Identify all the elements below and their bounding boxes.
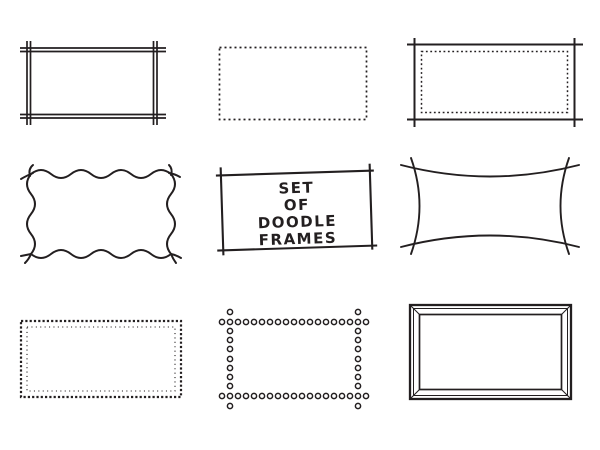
double-line-crossed-frame-lines (20, 41, 166, 125)
wavy-frame-drawing (20, 164, 182, 264)
double-dotted-outer-border (21, 321, 181, 397)
dashed-frame (216, 44, 370, 124)
picture-frame-middle-border (414, 309, 568, 396)
title-line-2: OF (284, 196, 311, 215)
picture-frame-outer-border (410, 305, 571, 399)
wavy-frame (20, 164, 182, 264)
concave-frame (398, 156, 588, 256)
picture-frame-miter-lines (410, 305, 571, 399)
double-line-crossed-frame (20, 41, 166, 125)
wavy-frame-lines (21, 165, 181, 263)
double-dotted-inner-border (27, 327, 175, 391)
picture-frame-drawing (407, 302, 575, 404)
crossed-frame-outer-lines (407, 38, 583, 127)
double-dotted-frame (16, 316, 188, 402)
double-dotted-frame-drawing (16, 316, 188, 402)
title-frame-rotated-group: SET OF DOODLE FRAMES (215, 163, 378, 256)
crossed-frame-dotted-border (422, 52, 568, 113)
circle-dot-frame (216, 306, 372, 412)
circle-dot-frame-drawing (216, 306, 372, 412)
doodle-frames-sheet: SET OF DOODLE FRAMES (0, 0, 600, 450)
title-frame: SET OF DOODLE FRAMES (214, 160, 380, 258)
picture-frame (407, 302, 575, 404)
circle-dot-frame-circles (219, 309, 368, 408)
dashed-frame-drawing (216, 44, 370, 124)
dashed-frame-border (220, 48, 367, 120)
concave-frame-curves (401, 158, 579, 254)
crossed-frame-dotted-inner-drawing (406, 38, 586, 128)
crossed-frame-dotted-inner (406, 38, 586, 128)
concave-frame-drawing (398, 156, 588, 256)
title-frame-drawing: SET OF DOODLE FRAMES (214, 160, 380, 258)
double-line-crossed-frame-drawing (20, 41, 166, 125)
picture-frame-inner-border (420, 315, 562, 390)
title-line-4: FRAMES (258, 229, 337, 249)
